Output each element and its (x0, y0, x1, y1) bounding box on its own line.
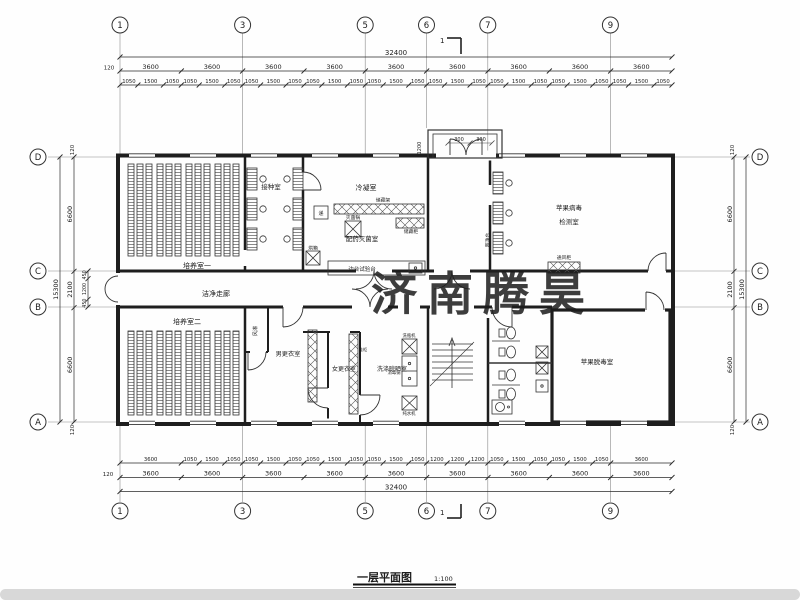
axis-bubble-top-9: 9 (602, 17, 618, 33)
axis-label: D (35, 153, 42, 163)
watermark-text: 济南腾昊 (371, 267, 595, 321)
svg-text:1500: 1500 (205, 79, 219, 85)
axis-label: 5 (362, 507, 367, 517)
entrance-dim-1200: 1200 (417, 142, 423, 155)
washing-equipment (402, 339, 417, 410)
svg-text:450: 450 (82, 270, 88, 279)
axis-bubble-bottom-1: 1 (112, 503, 128, 519)
label-disinfect-pot: 消毒锅 (388, 369, 402, 376)
axis-label: 6 (424, 21, 429, 31)
axis-label: 7 (485, 507, 490, 517)
svg-text:1050: 1050 (656, 79, 670, 85)
axis-label: 9 (608, 507, 613, 517)
label-oven: 烘箱 (308, 245, 318, 252)
svg-text:1050: 1050 (552, 79, 566, 85)
svg-text:1050: 1050 (368, 457, 382, 463)
svg-text:1500: 1500 (451, 79, 465, 85)
floor-plan-page: 1 3 5 6 7 9 1 3 5 6 7 9 D C B A D C B A … (0, 0, 800, 600)
room-label-culture1: 培养室一 (183, 261, 211, 270)
svg-text:2100: 2100 (726, 281, 734, 298)
label-storage-cabinet: 储藏柜 (404, 228, 419, 235)
locker-mens (308, 330, 317, 402)
dim-strip-bottom-small: 3600105015001050105015001050105015001050… (118, 457, 675, 465)
svg-text:1050: 1050 (184, 457, 198, 463)
svg-text:3600: 3600 (204, 470, 221, 478)
svg-text:3600: 3600 (142, 470, 159, 478)
dim-strip-top-small: 1050150010501050150010501050150010501050… (118, 79, 675, 87)
svg-text:3600: 3600 (388, 470, 405, 478)
drawing-title: 一层平面图 (357, 571, 412, 584)
svg-text:1050: 1050 (166, 79, 180, 85)
svg-text:3600: 3600 (572, 470, 589, 478)
svg-text:3600: 3600 (265, 470, 282, 478)
svg-text:1500: 1500 (205, 457, 219, 463)
svg-text:1500: 1500 (389, 79, 403, 85)
dim-strip-right-majors: 660021006600 (726, 155, 737, 425)
label-shoe-cabinet: 鞋柜 (359, 346, 367, 353)
svg-text:3600: 3600 (633, 470, 650, 478)
svg-text:1050: 1050 (534, 457, 548, 463)
svg-text:1050: 1050 (227, 79, 241, 85)
svg-text:1500: 1500 (635, 79, 649, 85)
svg-text:1050: 1050 (595, 457, 609, 463)
svg-text:1050: 1050 (245, 79, 259, 85)
label-storage-rack: 储藏架 (376, 197, 391, 204)
svg-text:15300: 15300 (738, 279, 746, 300)
axis-bubble-left-D: D (30, 149, 46, 165)
axis-label: A (757, 418, 763, 428)
svg-text:6600: 6600 (726, 206, 734, 223)
dim-strip-top-overall: 32400 (118, 49, 675, 59)
axis-label: A (35, 418, 41, 428)
drawing-scale: 1:100 (434, 575, 453, 583)
svg-text:1050: 1050 (429, 79, 443, 85)
svg-text:6600: 6600 (726, 357, 734, 374)
axis-label: 3 (240, 21, 245, 31)
label-pass-box: 递 (318, 210, 323, 217)
axis-bubble-right-C: C (752, 263, 768, 279)
axis-bubble-bottom-9: 9 (602, 503, 618, 519)
svg-text:1200: 1200 (430, 457, 444, 463)
svg-text:1050: 1050 (245, 457, 259, 463)
svg-text:3600: 3600 (633, 63, 650, 71)
locker-womens (349, 334, 358, 414)
axis-bubble-left-B: B (30, 299, 46, 315)
axis-bubble-top-1: 1 (112, 17, 128, 33)
virus-test-benches (493, 172, 512, 254)
dim-cap-left-bottom: 120 (70, 424, 76, 435)
section-mark-top-label: 1 (440, 37, 444, 45)
svg-text:3600: 3600 (388, 63, 405, 71)
svg-text:1500: 1500 (328, 79, 342, 85)
dim-strip-bottom-bays: 360036003600360036003600360036003600 (118, 470, 675, 480)
staircase (430, 338, 474, 388)
svg-text:1050: 1050 (288, 457, 302, 463)
axis-bubble-top-5: 5 (357, 17, 373, 33)
svg-text:1200: 1200 (82, 283, 88, 295)
svg-text:1050: 1050 (184, 79, 198, 85)
room-label-inoculation: 接种室 (261, 182, 281, 191)
dim-cap-top: 120 (104, 66, 115, 72)
svg-text:1050: 1050 (490, 79, 504, 85)
room-label-womens-change: 女更衣室 (332, 365, 356, 373)
svg-text:1050: 1050 (613, 79, 627, 85)
svg-text:6600: 6600 (66, 357, 74, 374)
svg-text:32400: 32400 (385, 49, 407, 57)
svg-text:1500: 1500 (328, 457, 342, 463)
axis-label: 1 (117, 21, 122, 31)
dim-strip-left-majors: 660021006600 (66, 155, 77, 425)
axis-bubble-bottom-7: 7 (480, 503, 496, 519)
room-label-detox: 苹果脱毒室 (581, 357, 614, 366)
svg-text:3600: 3600 (510, 470, 527, 478)
room-label-virus-test-1: 苹果病毒 (556, 203, 583, 212)
svg-text:2100: 2100 (66, 281, 74, 298)
svg-text:1050: 1050 (411, 79, 425, 85)
axis-bubble-bottom-3: 3 (235, 503, 251, 519)
dim-cap-left-top: 120 (70, 144, 76, 155)
svg-text:3600: 3600 (449, 470, 466, 478)
culture2-racks (128, 331, 239, 415)
axis-bubble-bottom-5: 5 (357, 503, 373, 519)
svg-text:1050: 1050 (122, 79, 136, 85)
floor-plan-drawing: 1 3 5 6 7 9 1 3 5 6 7 9 D C B A D C B A … (0, 0, 800, 600)
svg-text:1500: 1500 (267, 79, 281, 85)
axis-bubble-right-D: D (752, 149, 768, 165)
svg-text:1050: 1050 (306, 457, 320, 463)
svg-text:1500: 1500 (144, 79, 158, 85)
axis-label: 9 (608, 21, 613, 31)
axis-bubble-right-B: B (752, 299, 768, 315)
svg-text:3600: 3600 (326, 63, 343, 71)
svg-text:1050: 1050 (368, 79, 382, 85)
svg-text:1050: 1050 (411, 457, 425, 463)
axis-bubble-left-A: A (30, 414, 46, 430)
svg-text:15300: 15300 (52, 279, 60, 300)
room-label-prep-steril: 配药灭菌室 (346, 234, 379, 243)
svg-text:1200: 1200 (451, 457, 465, 463)
svg-text:1050: 1050 (595, 79, 609, 85)
label-air-shower: 风淋 (251, 325, 259, 336)
axis-label: 3 (240, 507, 245, 517)
bottom-scrollbar (0, 589, 800, 600)
axis-label: D (757, 153, 764, 163)
room-label-corridor: 洁净走廊 (202, 289, 230, 298)
svg-text:6600: 6600 (66, 206, 74, 223)
wc-area (488, 327, 552, 414)
axis-label: 1 (117, 507, 122, 517)
svg-text:1050: 1050 (350, 79, 364, 85)
label-sterilizer: 灭菌锅 (346, 214, 361, 221)
culture1-racks (128, 164, 239, 256)
svg-text:3600: 3600 (265, 63, 282, 71)
axis-bubble-top-7: 7 (480, 17, 496, 33)
svg-text:3600: 3600 (510, 63, 527, 71)
svg-text:1050: 1050 (472, 79, 486, 85)
svg-text:1050: 1050 (490, 457, 504, 463)
axis-label: C (757, 267, 763, 277)
dim-cap-bottom: 120 (103, 472, 114, 478)
svg-text:3600: 3600 (449, 63, 466, 71)
room-label-culture2: 培养室二 (173, 317, 201, 326)
dim-cap-right-bottom: 120 (730, 424, 736, 435)
room-label-virus-test-2: 检测室 (559, 217, 579, 226)
svg-text:3600: 3600 (572, 63, 589, 71)
svg-text:1050: 1050 (534, 79, 548, 85)
svg-text:1050: 1050 (288, 79, 302, 85)
dim-cap-right-top: 120 (730, 144, 736, 155)
svg-text:3600: 3600 (142, 63, 159, 71)
title-block: 一层平面图 1:100 (353, 571, 456, 588)
svg-text:1050: 1050 (306, 79, 320, 85)
section-mark-bottom-label: 1 (440, 509, 444, 517)
svg-text:1050: 1050 (350, 457, 364, 463)
axis-label: 5 (362, 21, 367, 31)
axis-bubble-right-A: A (752, 414, 768, 430)
axis-label: B (35, 303, 41, 313)
svg-text:3600: 3600 (326, 470, 343, 478)
label-water-purifier: 纯水机 (403, 410, 417, 417)
axis-bubble-left-C: C (30, 263, 46, 279)
dim-strip-left-overall: 15300 (52, 155, 63, 425)
svg-text:1050: 1050 (227, 457, 241, 463)
label-fume-hood: 通风柜 (557, 254, 572, 261)
svg-text:1500: 1500 (573, 457, 587, 463)
axis-bubble-bottom-6: 6 (419, 503, 435, 519)
svg-text:1200: 1200 (471, 457, 485, 463)
svg-text:3600: 3600 (635, 457, 649, 463)
svg-text:3600: 3600 (204, 63, 221, 71)
axis-label: 7 (485, 21, 490, 31)
axis-bubble-top-3: 3 (235, 17, 251, 33)
svg-text:1500: 1500 (512, 457, 526, 463)
room-label-condensation: 冷凝室 (356, 183, 377, 192)
dim-strip-top-bays: 360036003600360036003600360036003600 (118, 63, 675, 73)
axis-label: 6 (424, 507, 429, 517)
label-clean-bench: 超净台 (484, 233, 491, 248)
svg-text:3600: 3600 (144, 457, 158, 463)
axis-label: C (35, 267, 41, 277)
svg-text:1500: 1500 (389, 457, 403, 463)
label-bottle-washer: 洗瓶机 (403, 332, 417, 339)
svg-text:1500: 1500 (573, 79, 587, 85)
dim-strip-left-subs: 4501200450 (82, 269, 91, 310)
svg-text:32400: 32400 (385, 484, 407, 492)
svg-text:1050: 1050 (552, 457, 566, 463)
axis-label: B (757, 303, 763, 313)
dim-strip-bottom-overall: 32400 (118, 484, 675, 494)
svg-text:1500: 1500 (267, 457, 281, 463)
inoculation-benches (247, 168, 303, 250)
dim-strip-right-overall: 15300 (738, 155, 749, 425)
room-label-mens-change: 男更衣室 (276, 350, 301, 358)
svg-text:1500: 1500 (512, 79, 526, 85)
svg-text:450: 450 (82, 299, 88, 308)
axis-bubble-top-6: 6 (419, 17, 435, 33)
